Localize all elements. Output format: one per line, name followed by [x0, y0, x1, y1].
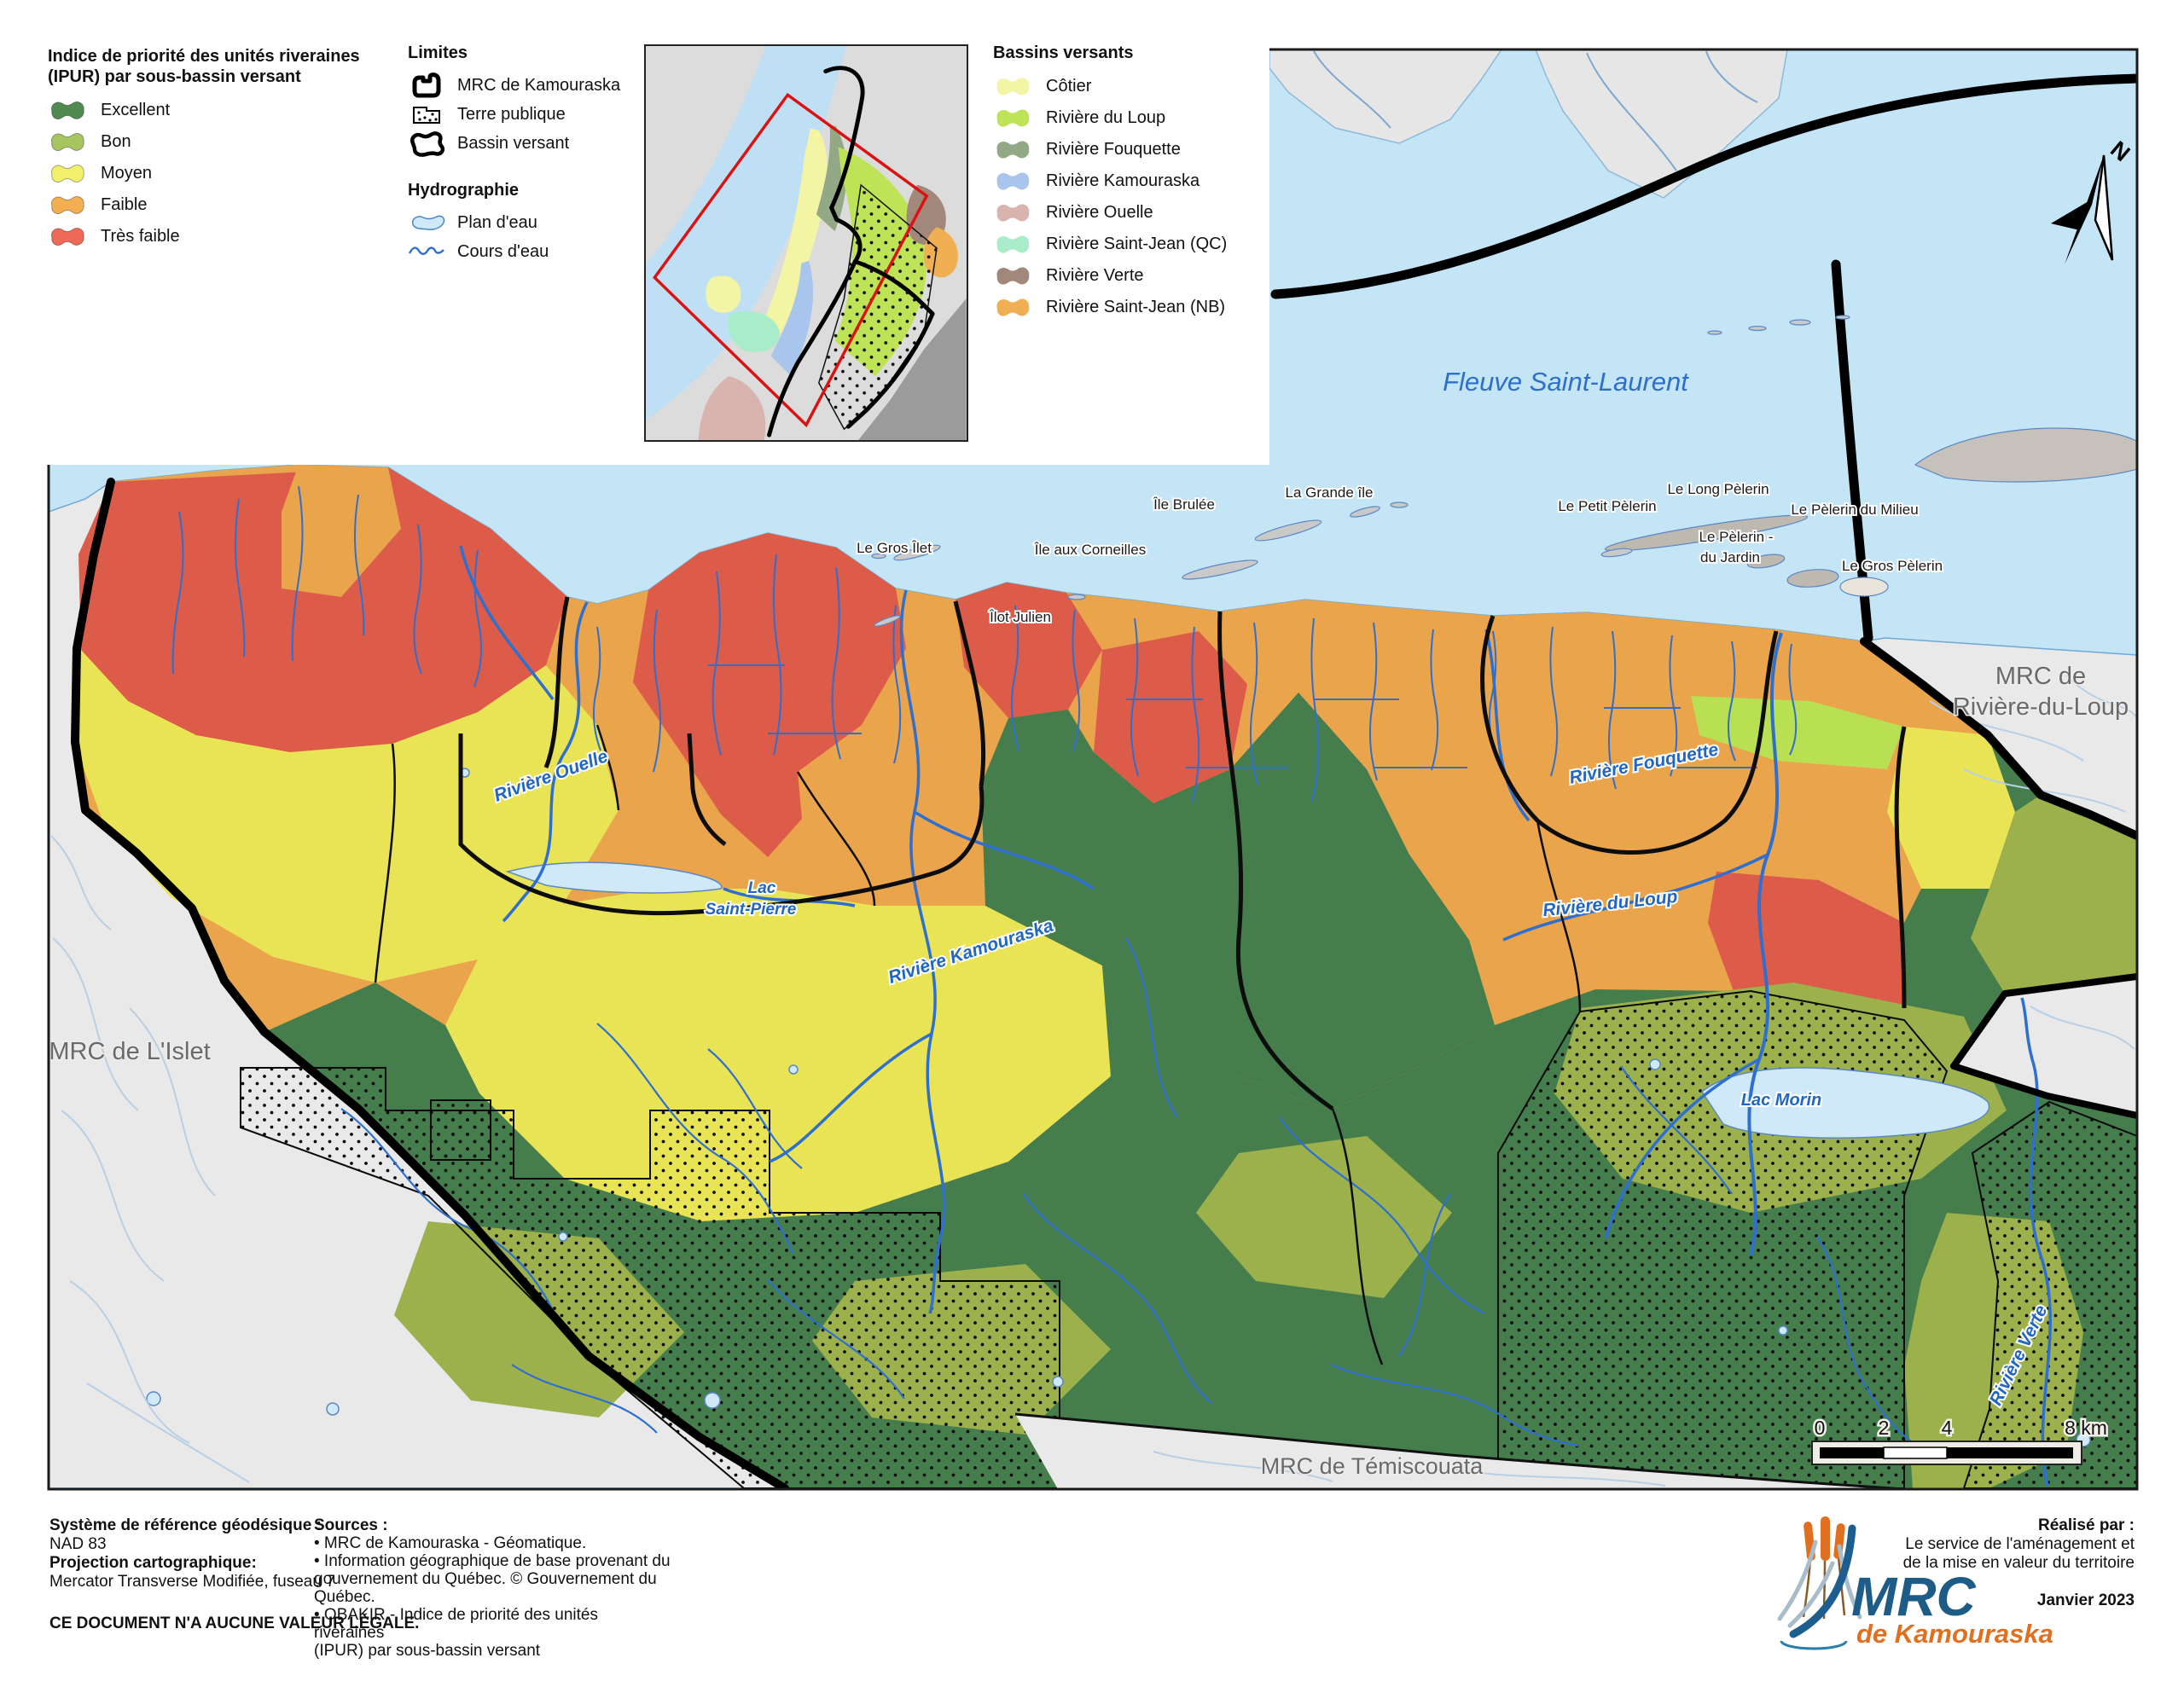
mrc-kamouraska-logo: MRC de Kamouraska — [1764, 1515, 2059, 1664]
legend-label: Très faible — [101, 227, 180, 246]
legend-item-cotier: Côtier — [993, 71, 1275, 102]
ref-system-title: Système de référence géodésique : — [49, 1516, 322, 1534]
legend-item-riviere-verte: Rivière Verte — [993, 260, 1275, 292]
logo-sub-text: de Kamouraska — [1856, 1619, 2053, 1649]
source-item: • Information géographique de base prove… — [314, 1552, 671, 1570]
footer-reference-block: Système de référence géodésique : NAD 83… — [49, 1516, 357, 1591]
mrc-islet-label: MRC de L'Islet — [49, 1038, 210, 1065]
scale-0: 0 — [1815, 1417, 1826, 1439]
footer-sources-block: Sources : • MRC de Kamouraska - Géomatiq… — [314, 1516, 672, 1660]
legend-limites-title: Limites — [408, 43, 647, 63]
legend-item-riviere-st-jean-qc: Rivière Saint-Jean (QC) — [993, 229, 1275, 260]
legend-label: Bon — [101, 132, 131, 152]
ipur-swatch-icon — [48, 130, 87, 154]
legend-item-riviere-kamouraska: Rivière Kamouraska — [993, 165, 1275, 197]
ipur-swatch-icon — [48, 225, 87, 249]
legend-label: Rivière Verte — [1046, 266, 1144, 286]
legend-label: Cours d'eau — [457, 242, 549, 262]
legend-item-cours-eau: Cours d'eau — [408, 237, 647, 266]
legend-label: Faible — [101, 195, 147, 215]
island-label: La Grande île — [1285, 484, 1373, 501]
island-label: du Jardin — [1700, 549, 1760, 565]
island-label: Le Gros Îlet — [857, 540, 932, 556]
legend-label: Rivière Saint-Jean (QC) — [1046, 235, 1227, 254]
basin-swatch-icon — [993, 75, 1032, 99]
legend-item-bassin-versant: Bassin versant — [408, 129, 647, 158]
source-item: (IPUR) par sous-bassin versant — [314, 1642, 540, 1660]
mrc-rdl-label-2: Rivière-du-Loup — [1953, 693, 2129, 721]
mrc-boundary-icon — [408, 72, 445, 99]
legend-item-moyen: Moyen — [48, 158, 398, 189]
basin-swatch-icon — [993, 233, 1032, 257]
island-label: Le Pèlerin - — [1699, 529, 1774, 545]
legend-label: Bassin versant — [457, 134, 569, 154]
scale-4: 4 — [1942, 1417, 1953, 1439]
legend-item-riviere-fouquette: Rivière Fouquette — [993, 134, 1275, 165]
legend-label: Excellent — [101, 101, 170, 120]
legend-item-bon: Bon — [48, 126, 398, 158]
sea-label: Fleuve Saint-Laurent — [1443, 367, 1689, 397]
basin-swatch-icon — [993, 296, 1032, 320]
ipur-swatch-icon — [48, 99, 87, 123]
legend-label: Rivière Fouquette — [1046, 140, 1181, 159]
legend-label: Moyen — [101, 164, 152, 183]
legend-item-terre-publique: Terre publique — [408, 100, 647, 129]
legend-label: Terre publique — [457, 105, 566, 125]
lake-label-st-pierre-2: Saint-Pierre — [706, 901, 797, 919]
island-label: Le Petit Pèlerin — [1558, 498, 1656, 514]
legend-panel: Indice de priorité des unités riveraines… — [0, 0, 1269, 465]
watershed-boundary-icon — [408, 130, 445, 157]
legend-item-plan-eau: Plan d'eau — [408, 208, 647, 237]
basin-swatch-icon — [993, 138, 1032, 162]
projection-value: Mercator Transverse Modifiée, fuseau 7 — [49, 1573, 335, 1591]
public-land-icon — [408, 101, 445, 128]
scale-2: 2 — [1879, 1417, 1890, 1439]
legend-bassins-title: Bassins versants — [993, 43, 1275, 63]
island-label: Le Pèlerin du Milieu — [1791, 501, 1918, 518]
mrc-rdl-label-1: MRC de — [1995, 663, 2086, 690]
ipur-swatch-icon — [48, 162, 87, 186]
legend-label: Rivière Saint-Jean (NB) — [1046, 298, 1225, 317]
island-label: Îlot Julien — [989, 609, 1051, 625]
legend-label: Plan d'eau — [457, 213, 537, 233]
legend-item-riviere-ouelle: Rivière Ouelle — [993, 197, 1275, 229]
legend-bassins: Bassins versants Côtier Rivière du Loup … — [993, 43, 1275, 323]
island-label: Le Long Pèlerin — [1667, 481, 1769, 497]
legend-item-tres-faible: Très faible — [48, 221, 398, 252]
island-label: Le Gros Pèlerin — [1842, 558, 1943, 574]
lake-label-st-pierre-1: Lac — [748, 879, 776, 897]
inset-overview-map — [644, 44, 968, 442]
legend-label: Rivière Ouelle — [1046, 203, 1153, 223]
legend-item-faible: Faible — [48, 189, 398, 221]
island-label: Île aux Corneilles — [1034, 542, 1146, 558]
legend-limites: Limites MRC de Kamouraska Terre publique… — [408, 43, 647, 266]
basin-swatch-icon — [993, 170, 1032, 194]
waterbody-icon — [408, 209, 445, 236]
basin-swatch-icon — [993, 264, 1032, 288]
basin-swatch-icon — [993, 107, 1032, 130]
legend-label: Rivière du Loup — [1046, 108, 1165, 128]
inset-map-art — [646, 46, 967, 440]
legend-item-riviere-st-jean-nb: Rivière Saint-Jean (NB) — [993, 292, 1275, 323]
lake-label-morin: Lac Morin — [1741, 1091, 1821, 1110]
stream-icon — [408, 238, 445, 265]
basin-swatch-icon — [993, 201, 1032, 225]
legend-ipur: Indice de priorité des unités riveraines… — [48, 46, 398, 252]
ref-system-value: NAD 83 — [49, 1535, 107, 1553]
legend-label: Côtier — [1046, 77, 1091, 96]
cattails-icon — [1780, 1516, 1860, 1649]
source-item: • OBAKIR - Indice de priorité des unités… — [314, 1606, 598, 1642]
logo-ripple — [1781, 1641, 1846, 1649]
source-item: • MRC de Kamouraska - Géomatique. — [314, 1534, 586, 1552]
island-label: Île Brulée — [1153, 496, 1215, 513]
legend-ipur-title-1: Indice de priorité des unités riveraines — [48, 46, 398, 67]
legend-item-mrc: MRC de Kamouraska — [408, 71, 647, 100]
scale-8km: 8 km — [2065, 1417, 2107, 1439]
mrc-temiscouata-label: MRC de Témiscouata — [1261, 1453, 1484, 1479]
legend-label: Rivière Kamouraska — [1046, 171, 1199, 191]
projection-title: Projection cartographique: — [49, 1554, 257, 1572]
sources-title: Sources : — [314, 1516, 388, 1534]
legend-item-riviere-du-loup: Rivière du Loup — [993, 102, 1275, 134]
source-item: gouvernement du Québec. © Gouvernement d… — [314, 1570, 657, 1606]
legend-label: MRC de Kamouraska — [457, 76, 620, 96]
ipur-swatch-icon — [48, 194, 87, 217]
legend-hydro-title: Hydrographie — [408, 180, 647, 200]
legend-ipur-title-2: (IPUR) par sous-bassin versant — [48, 67, 398, 87]
legend-item-excellent: Excellent — [48, 95, 398, 126]
